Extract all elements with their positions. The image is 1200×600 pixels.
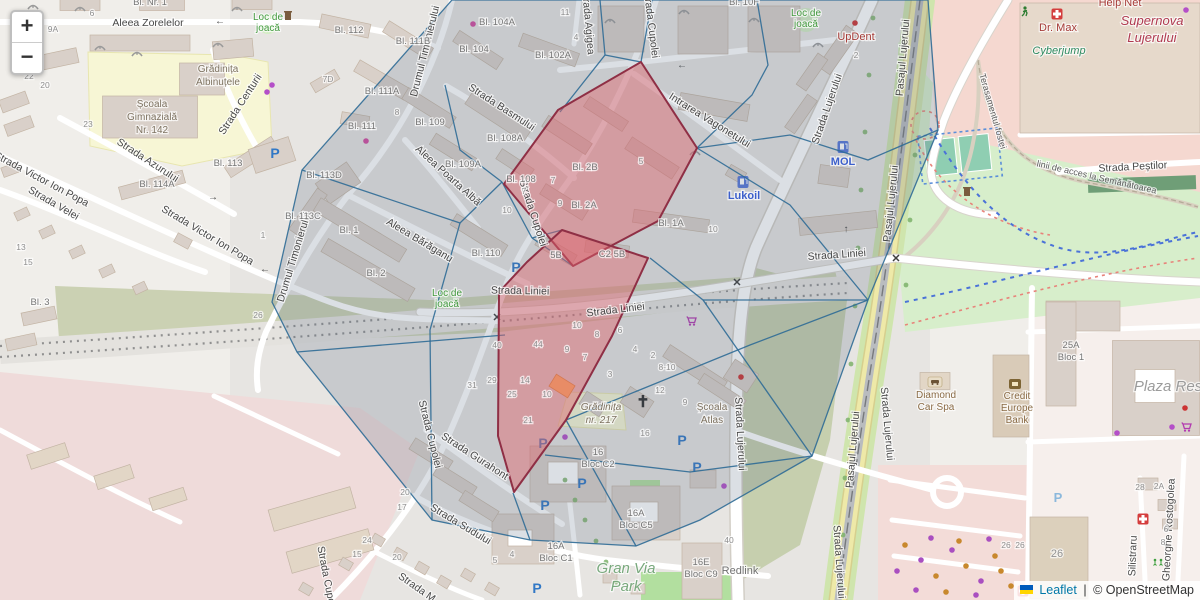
map-label: 3	[608, 369, 613, 379]
map-label: 17	[397, 502, 407, 512]
map-label: Bl. 10F	[729, 0, 759, 8]
map-label: 8	[1161, 537, 1166, 547]
poi-dot	[956, 538, 962, 544]
poi-dot	[978, 578, 984, 584]
map-label: Bl. 1A	[658, 218, 684, 229]
map-label: Lukoil	[728, 190, 760, 202]
map-label: 8	[395, 107, 400, 117]
arrow-icon: ←	[215, 16, 225, 27]
oneway-arrow-icon: ←	[215, 16, 225, 27]
poi-dot	[1182, 405, 1188, 411]
map-label: Bl. 102A	[535, 50, 572, 61]
map-label: Bl. 109	[415, 117, 445, 128]
map-label: Școala	[697, 402, 728, 413]
map-shape	[217, 44, 219, 46]
map-label: Bl. 109A	[445, 159, 482, 170]
map-label: 5	[493, 555, 498, 565]
poi-dot	[986, 536, 992, 542]
map-label: Credit	[1004, 391, 1031, 402]
zoom-out-button[interactable]: −	[12, 43, 42, 73]
map-label: 13	[16, 242, 26, 252]
map-label: Grădinița	[581, 402, 622, 413]
map-label: 9	[683, 397, 688, 407]
parking-icon: P	[1054, 490, 1063, 505]
map-label: 16A	[548, 541, 566, 552]
attribution-bar: Leaflet | © OpenStreetMap	[1014, 581, 1200, 600]
map-shape	[963, 187, 971, 189]
map-label: Bank	[1006, 415, 1030, 426]
trash-icon	[963, 187, 971, 196]
map-shape	[1184, 430, 1186, 432]
poi-dot	[963, 563, 969, 569]
map-label: Bloc 1	[1058, 352, 1084, 363]
map-label: 10	[708, 224, 718, 234]
map-label: 26	[1051, 548, 1063, 560]
map-label: Bl. 111	[348, 121, 376, 132]
map-shape	[236, 8, 238, 10]
map-shape	[937, 383, 939, 385]
poi-dot	[913, 587, 919, 593]
map-label: Dr. Max	[1039, 22, 1077, 34]
map-shape	[932, 383, 934, 385]
map-label: Bl. 111A	[365, 86, 400, 97]
poi-dot	[992, 553, 998, 559]
map-label: Bl. 113	[214, 158, 243, 169]
parking-icon: P	[270, 145, 279, 161]
map-label: Bl. 2B	[572, 162, 597, 173]
bank-icon	[1009, 379, 1021, 389]
map-label: 25	[507, 389, 517, 399]
poi-dot	[1183, 7, 1189, 13]
map-label: 7	[583, 352, 588, 362]
map-label: Aleea Zorelelor	[112, 17, 184, 29]
map-label: Bl. 114A	[139, 179, 175, 190]
map-label: 14	[520, 375, 530, 385]
map-label: 26	[253, 310, 263, 320]
crossing-icon: ✕	[891, 253, 900, 265]
map-label: joacă	[255, 23, 280, 34]
map-shape	[285, 12, 291, 20]
map-shape	[99, 47, 101, 49]
map-label: 7	[551, 175, 556, 185]
map-label: 9A	[48, 24, 59, 34]
map-shape	[964, 188, 970, 196]
tree-icon	[904, 283, 909, 288]
arrow-icon: →	[208, 192, 218, 203]
tree-icon	[908, 218, 913, 223]
map-label: Bl. Nr. 1	[133, 0, 167, 8]
map-label: Bl. 110	[472, 248, 501, 259]
map-label: 24	[362, 535, 372, 545]
map-label: 25A	[1063, 340, 1081, 351]
map-label: 10	[542, 389, 552, 399]
map-label: Bloc C2	[581, 459, 614, 470]
map-label: 31	[467, 380, 477, 390]
map-label: Bloc C9	[684, 569, 717, 580]
map-shape	[931, 380, 939, 383]
map-shape	[79, 8, 81, 10]
poi-dot	[949, 547, 955, 553]
map-label: 16E	[693, 557, 710, 568]
map-label: 4	[574, 32, 579, 42]
map-label: Help Net	[1099, 0, 1142, 9]
oneway-arrow-icon: →	[208, 192, 218, 203]
map-label: 20	[400, 487, 410, 497]
map-label: 29	[487, 375, 497, 385]
map-label: 26	[1001, 540, 1011, 550]
map-shape	[1012, 382, 1018, 386]
map-label: 7D	[323, 74, 334, 84]
map-label: Bl. 113C	[285, 211, 321, 222]
map-label: 8-10	[658, 362, 675, 372]
map-label: Grădinița	[198, 64, 239, 75]
map-label: Car Spa	[918, 402, 955, 413]
tree-icon	[849, 362, 854, 367]
map-label: Loc de	[791, 8, 821, 19]
map-label: Bl. 108	[506, 174, 536, 185]
map-shape	[1188, 430, 1190, 432]
map-label: Lujerului	[1127, 30, 1177, 45]
map-label: 15	[352, 549, 362, 559]
map-label: 2A	[1154, 481, 1165, 491]
map-label: C2 5B	[599, 249, 625, 260]
railway-crossing-icon: ✕	[891, 253, 900, 265]
map-label: Bloc C5	[619, 520, 652, 531]
map-label: Bl. 2	[366, 268, 385, 279]
poi-dot	[943, 589, 949, 595]
map-label: UpDent	[837, 31, 874, 43]
map-label: Europe	[1001, 403, 1034, 414]
poi-dot	[1169, 424, 1175, 430]
map-label: 20	[40, 80, 50, 90]
map-label: Bl. 3	[30, 297, 49, 308]
zoom-in-button[interactable]: +	[12, 12, 42, 43]
map-shape	[284, 11, 292, 13]
map-label: 44	[533, 339, 543, 349]
map-label: Supernova	[1121, 13, 1184, 28]
map-label: Silistraru	[1126, 535, 1139, 576]
map-label: 6	[90, 8, 95, 18]
parking-icon: P	[270, 145, 279, 161]
map-label: 4	[633, 344, 638, 354]
map-label: Gimnazială	[127, 112, 177, 123]
map-label: 11	[561, 7, 570, 17]
osm-link[interactable]: © OpenStreetMap	[1093, 583, 1194, 597]
map-label: 15	[23, 257, 33, 267]
map-label: 5	[639, 156, 644, 166]
map-label: 2	[651, 350, 656, 360]
parking2-icon: P	[1054, 490, 1063, 505]
map-label: Bloc C1	[539, 553, 572, 564]
medcross-icon	[1138, 514, 1149, 525]
map-label: Redlink	[722, 565, 759, 577]
car-icon	[928, 377, 942, 387]
map-label: joacă	[793, 19, 818, 30]
map-label: Școala	[137, 99, 168, 110]
map-label: 40	[724, 535, 734, 545]
map-label: joacă	[434, 299, 459, 310]
map-label: 6	[1164, 524, 1169, 534]
building	[90, 35, 190, 51]
map-label: Nr. 142	[136, 125, 169, 136]
map-label: 9	[558, 198, 563, 208]
medcross-icon	[1052, 9, 1063, 20]
poi-dot	[894, 568, 900, 574]
map-label: 21	[523, 415, 533, 425]
map-label: Bl. 111B	[396, 36, 431, 47]
map-label: Atlas	[701, 415, 723, 426]
poi-dot	[918, 557, 924, 563]
map-label: Strada Liniei	[491, 284, 550, 297]
map-label: 26	[1015, 540, 1025, 550]
map-label: MOL	[831, 156, 856, 168]
map-label: Bl. 108A	[487, 133, 524, 144]
map-label: nr. 217	[586, 415, 617, 426]
map-label: Albinuțele	[196, 77, 240, 88]
map-label: 16	[640, 428, 650, 438]
map-label: 40	[492, 340, 502, 350]
map-label: 28	[1135, 482, 1145, 492]
map-label: Cyberjump	[1032, 45, 1085, 57]
arrow-icon: ←	[260, 264, 270, 275]
map-label: 9	[565, 344, 570, 354]
map-label: 20	[392, 552, 402, 562]
map-label: 7	[522, 186, 527, 196]
map-shape	[32, 6, 34, 8]
oneway-arrow-icon: ←	[260, 264, 270, 275]
map-shape	[1053, 13, 1061, 16]
poi-dot	[1114, 430, 1120, 436]
map-shape	[1139, 518, 1147, 521]
zoom-control: + −	[10, 10, 44, 75]
map-label: 2	[854, 50, 859, 60]
ukraine-flag-icon	[1020, 585, 1033, 594]
map-shape	[1154, 559, 1157, 562]
map-label: Bl. 104A	[479, 17, 516, 28]
map-label: Loc de	[253, 12, 283, 23]
map-label: Gran Via	[597, 560, 656, 577]
poi-dot	[933, 573, 939, 579]
attribution-separator: |	[1083, 583, 1086, 597]
poi-dot	[264, 89, 270, 95]
poi-dot	[269, 82, 275, 88]
trash-icon	[284, 11, 292, 20]
parking-icon: P	[532, 580, 541, 596]
map-label: 16	[593, 447, 604, 458]
map-label: Bl. 1	[339, 225, 358, 236]
map-label: 10	[502, 205, 512, 215]
map-label: 5B	[550, 250, 562, 261]
map-label: Bl. 104	[459, 44, 489, 55]
map-label: 8	[595, 329, 600, 339]
map-svg[interactable]: PPPPPPPPP✕✕✕✝←→←←↑↑ Aleea ZorelelorStrad…	[0, 0, 1200, 600]
map-shape	[136, 53, 138, 55]
map-label: 23	[83, 119, 93, 129]
map-label: Bl. 112	[335, 25, 364, 36]
map-label: 4	[510, 549, 515, 559]
map-label: 6	[618, 325, 623, 335]
map-shape	[1023, 6, 1026, 9]
map-label: Loc de	[432, 288, 462, 299]
building	[212, 38, 253, 59]
map-label: 1	[261, 230, 266, 240]
poi-dot	[998, 568, 1004, 574]
map-label: Bl. 113D	[306, 170, 342, 181]
poi-dot	[973, 592, 979, 598]
map-label: Plaza Res	[1134, 378, 1200, 395]
leaflet-link[interactable]: Leaflet	[1039, 583, 1077, 597]
map-label: Bl. 2A	[571, 200, 597, 211]
parking-icon: P	[532, 580, 541, 596]
map-canvas[interactable]: PPPPPPPPP✕✕✕✝←→←←↑↑ Aleea ZorelelorStrad…	[0, 0, 1200, 600]
map-label: 16A	[628, 508, 646, 519]
map-label: Park	[611, 578, 643, 595]
map-label: 12	[655, 385, 665, 395]
poi-dot	[902, 542, 908, 548]
map-label: 10	[572, 320, 582, 330]
map-label: Diamond	[916, 390, 956, 401]
poi-dot	[928, 535, 934, 541]
